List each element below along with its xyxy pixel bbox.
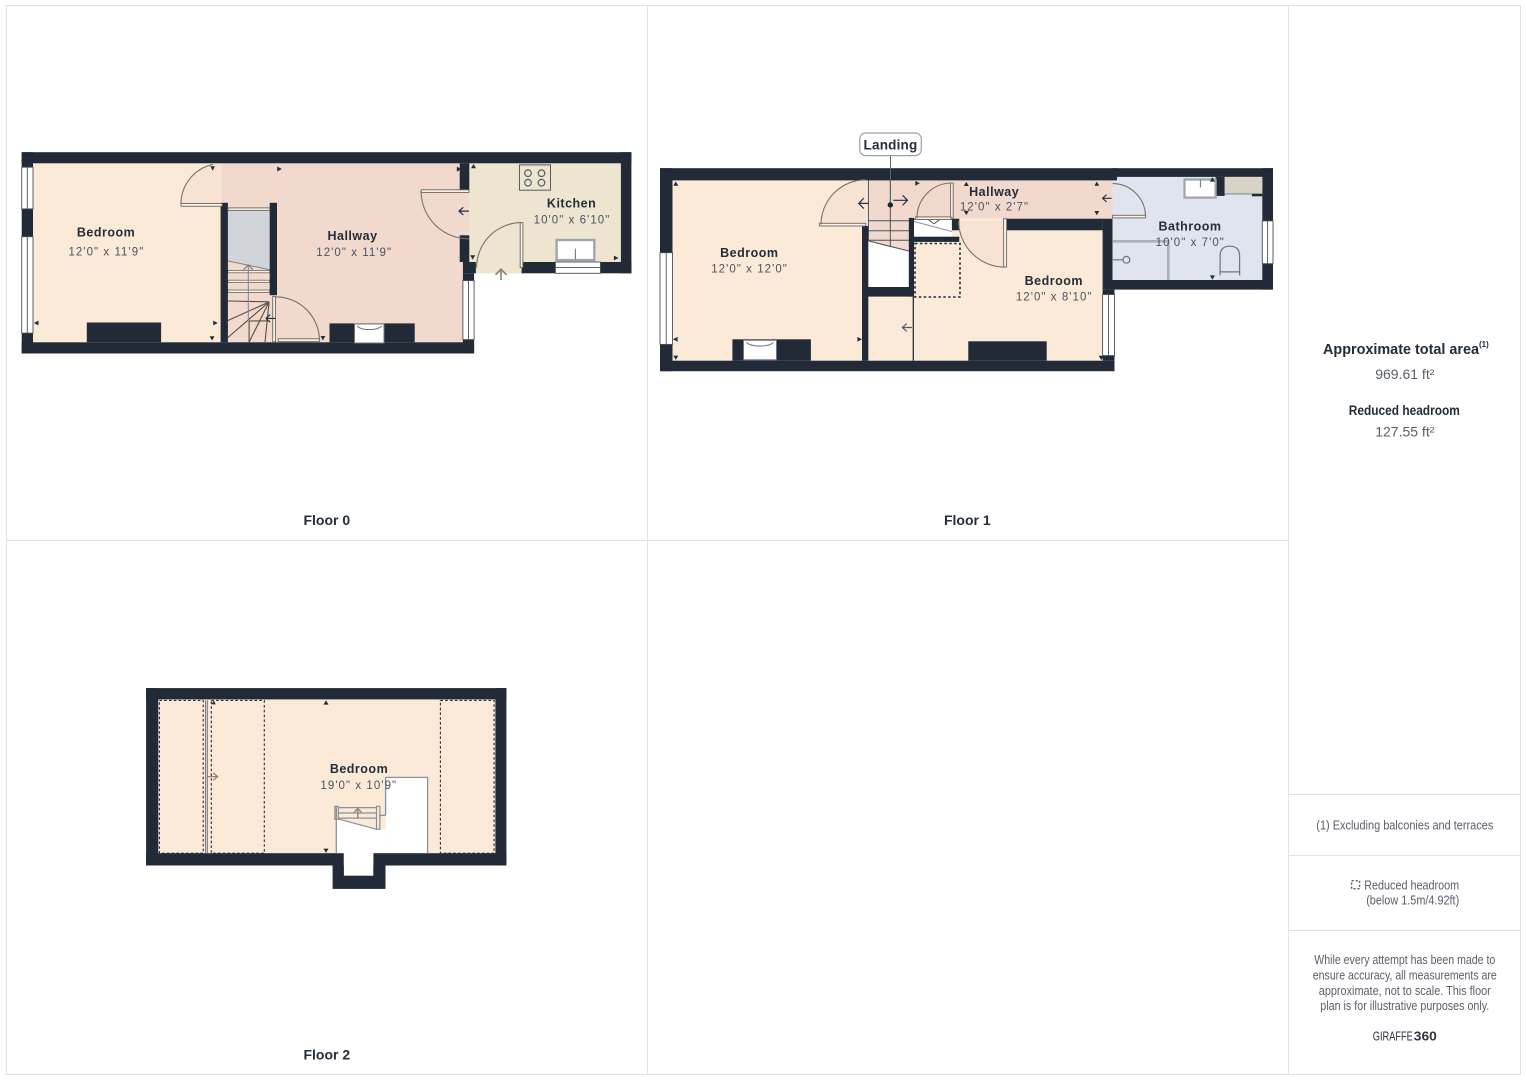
svg-text:Hallway: Hallway — [327, 229, 377, 243]
svg-text:Floor 0: Floor 0 — [303, 512, 350, 528]
svg-text:Floor 1: Floor 1 — [944, 512, 991, 528]
svg-text:Approximate total area: Approximate total area — [1323, 341, 1480, 358]
svg-text:Bedroom: Bedroom — [1025, 274, 1083, 288]
svg-text:Bedroom: Bedroom — [720, 246, 778, 260]
svg-text:approximate, not to scale. Thi: approximate, not to scale. This floor — [1319, 984, 1491, 998]
svg-text:12'0" x 12'0": 12'0" x 12'0" — [711, 263, 788, 275]
svg-text:Bathroom: Bathroom — [1158, 219, 1221, 233]
svg-text:10'0" x 7'0": 10'0" x 7'0" — [1156, 237, 1225, 249]
svg-text:Bedroom: Bedroom — [77, 226, 135, 240]
svg-text:(1): (1) — [1479, 340, 1489, 349]
svg-text:360: 360 — [1414, 1029, 1437, 1044]
svg-text:ensure accuracy, all measureme: ensure accuracy, all measurements are — [1313, 969, 1497, 983]
svg-text:12'0" x 2'7": 12'0" x 2'7" — [960, 202, 1029, 214]
svg-text:Landing: Landing — [864, 137, 918, 152]
svg-text:GIRAFFE: GIRAFFE — [1373, 1029, 1413, 1044]
svg-text:plan is for illustrative purpo: plan is for illustrative purposes only. — [1320, 999, 1489, 1013]
svg-text:Hallway: Hallway — [969, 185, 1019, 199]
svg-text:127.55 ft²: 127.55 ft² — [1375, 423, 1434, 439]
svg-text:12'0" x 8'10": 12'0" x 8'10" — [1016, 292, 1093, 304]
svg-text:Bedroom: Bedroom — [330, 762, 388, 776]
svg-text:12'0" x 11'9": 12'0" x 11'9" — [68, 246, 144, 258]
svg-text:10'0" x 6'10": 10'0" x 6'10" — [534, 215, 611, 227]
svg-text:(below 1.5m/4.92ft): (below 1.5m/4.92ft) — [1366, 893, 1459, 907]
svg-text:While every attempt has been m: While every attempt has been made to — [1314, 953, 1495, 967]
svg-text:969.61 ft²: 969.61 ft² — [1375, 366, 1434, 382]
svg-text:Kitchen: Kitchen — [547, 197, 596, 211]
svg-text:Reduced headroom: Reduced headroom — [1349, 403, 1460, 418]
svg-text:(1) Excluding balconies and te: (1) Excluding balconies and terraces — [1316, 818, 1493, 832]
svg-text:Reduced headroom: Reduced headroom — [1364, 878, 1459, 892]
svg-text:Floor 2: Floor 2 — [303, 1047, 350, 1063]
svg-text:19'0" x 10'9": 19'0" x 10'9" — [320, 780, 397, 792]
svg-text:12'0" x 11'9": 12'0" x 11'9" — [316, 247, 392, 259]
